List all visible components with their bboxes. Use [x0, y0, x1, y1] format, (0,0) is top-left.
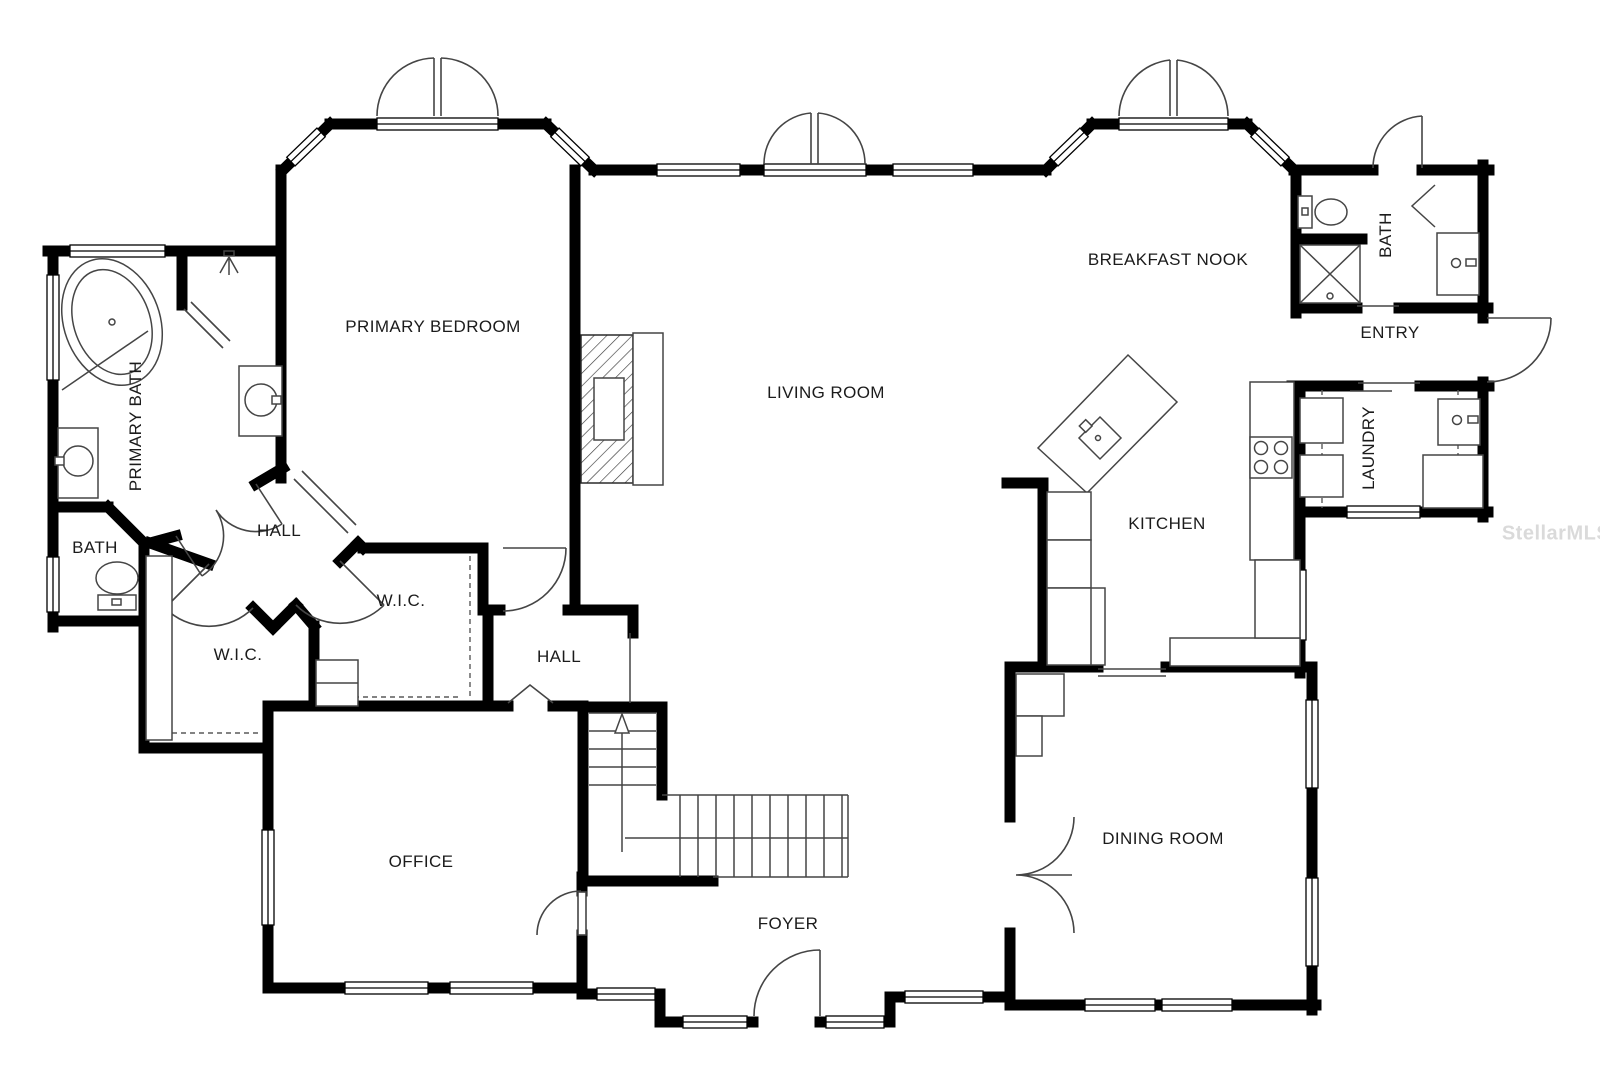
window-icon [450, 982, 533, 994]
room-label-bath-pool: BATH [1376, 212, 1396, 258]
window-icon [1306, 878, 1318, 966]
dining-cabinet [1016, 674, 1064, 756]
door-icon [503, 548, 566, 611]
fireplace-icon [581, 333, 663, 485]
window-icon [47, 557, 59, 612]
door-icon [754, 950, 820, 1016]
doors [165, 58, 1551, 1016]
window-icon [683, 1016, 747, 1028]
floor-plan-drawing [0, 0, 1600, 1066]
door-icon [537, 891, 586, 935]
window-icon [1306, 700, 1318, 788]
bath-sink-icon [1437, 233, 1479, 295]
dryer-icon [1300, 455, 1343, 497]
room-label-dining-room: DINING ROOM [1102, 829, 1224, 849]
staircase [589, 713, 848, 877]
window-icon [345, 982, 428, 994]
french-door-icon [1119, 60, 1228, 116]
room-label-bath-left: BATH [72, 538, 118, 558]
window-icon [551, 128, 590, 166]
door-sill [377, 118, 498, 130]
window-icon [597, 988, 655, 1000]
window-icon [1085, 999, 1155, 1011]
room-label-entry: ENTRY [1360, 323, 1419, 343]
door-sill [764, 164, 866, 176]
window-icon [1162, 999, 1232, 1011]
washer-icon [1300, 398, 1343, 443]
niche-corner [1412, 185, 1435, 227]
window-icon [905, 991, 983, 1003]
window-icon [657, 164, 740, 176]
shower-icon [1300, 245, 1360, 303]
window-icon [1347, 506, 1420, 518]
window-icon [70, 245, 165, 257]
french-door-icon [764, 113, 865, 164]
vanity-sink-icon [239, 366, 282, 436]
room-label-hall-main: HALL [257, 521, 301, 541]
closet-shelf [316, 660, 358, 706]
stairs-up-arrow [615, 714, 629, 852]
door-sill [1119, 118, 1228, 130]
bathtub-icon [45, 245, 180, 400]
toilet-icon [1298, 196, 1347, 228]
laundry-counter [1423, 455, 1483, 508]
room-label-hall-right: HALL [537, 647, 581, 667]
cased-opening [294, 471, 356, 533]
room-label-breakfast-nook: BREAKFAST NOOK [1088, 250, 1248, 270]
window-icon [1050, 128, 1089, 166]
room-label-primary-bedroom: PRIMARY BEDROOM [345, 317, 520, 337]
closet-shelf [146, 556, 172, 740]
door-icon [165, 564, 253, 626]
door-icon [1487, 318, 1551, 382]
door-icon [1373, 116, 1422, 168]
room-label-foyer: FOYER [758, 914, 819, 934]
room-label-wic-right: W.I.C. [377, 591, 426, 611]
toilet-icon [96, 562, 138, 610]
room-label-kitchen: KITCHEN [1128, 514, 1205, 534]
window-icon [47, 275, 59, 380]
window-icon [893, 164, 973, 176]
room-label-wic-left: W.I.C. [214, 645, 263, 665]
double-door-icon [1016, 817, 1074, 933]
window-icon [287, 128, 326, 166]
arched-opening-icon [508, 685, 553, 703]
laundry-sink-icon [1438, 399, 1480, 445]
french-door-icon [377, 58, 498, 116]
floor-plan: PRIMARY BEDROOM PRIMARY BATH BATH HALL W… [0, 0, 1600, 1066]
room-label-office: OFFICE [389, 852, 454, 872]
window-icon [826, 1016, 884, 1028]
room-label-laundry: LAUNDRY [1359, 406, 1379, 490]
kitchen-island [1038, 355, 1177, 493]
vanity-sink-icon [55, 428, 98, 498]
watermark-stellarmls: StellarMLS [1502, 523, 1600, 546]
cased-opening [184, 302, 230, 348]
window-icon [1251, 128, 1290, 166]
room-label-primary-bath: PRIMARY BATH [126, 361, 146, 491]
window-icon [262, 830, 274, 925]
room-label-living-room: LIVING ROOM [767, 383, 885, 403]
stove-icon [1250, 437, 1292, 478]
